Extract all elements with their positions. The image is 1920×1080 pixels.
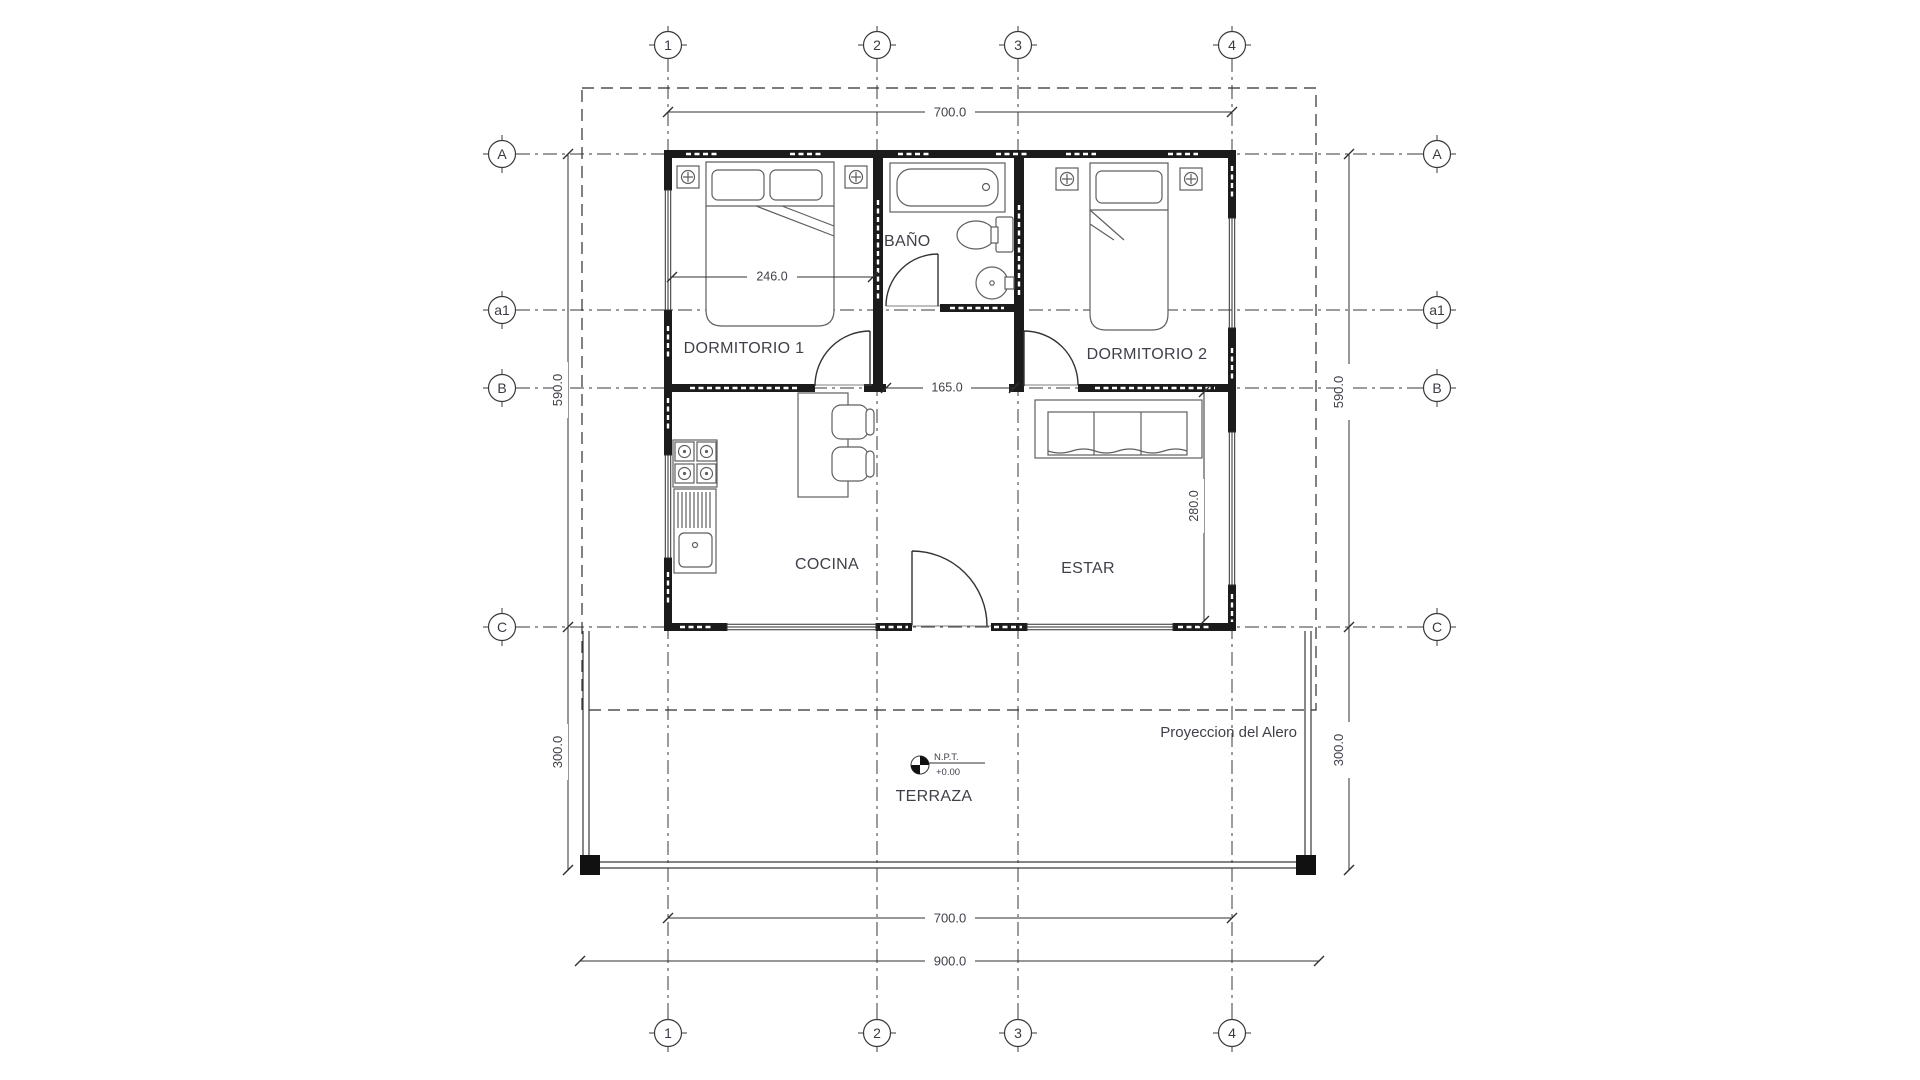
svg-text:C: C	[1432, 619, 1442, 635]
socket-box	[1056, 168, 1078, 190]
svg-text:3: 3	[1014, 37, 1022, 53]
svg-text:2: 2	[873, 1025, 881, 1041]
eave-projection-label: Proyeccion del Alero	[1160, 724, 1297, 741]
sink-basin	[679, 533, 712, 567]
window-cocina-west	[664, 455, 672, 558]
socket-box	[1180, 168, 1202, 190]
floor-plan-sheet: 700.0 700.0 900.0 590.0 300.0	[0, 0, 1920, 1080]
window-dorm1-west	[664, 190, 672, 310]
chair	[832, 405, 874, 439]
wall-left-seg3	[664, 558, 672, 631]
terrace-column-left	[580, 855, 600, 875]
socket-box	[845, 166, 867, 188]
pillow	[712, 170, 764, 200]
socket-box	[677, 166, 699, 188]
terrace-column-right	[1296, 855, 1316, 875]
washbasin-tap	[1005, 277, 1014, 289]
dim-label-280: 280.0	[1187, 490, 1201, 521]
room-label-bano: BAÑO	[884, 230, 931, 250]
room-label-cocina: COCINA	[795, 556, 859, 573]
svg-text:C: C	[497, 619, 507, 635]
svg-text:4: 4	[1228, 1025, 1236, 1041]
window-dorm2-east	[1228, 218, 1236, 328]
toilet-bowl	[957, 221, 995, 249]
dim-label-900: 900.0	[934, 954, 967, 969]
pillow	[770, 170, 822, 200]
dim-label-300-right: 300.0	[1331, 734, 1346, 767]
svg-text:A: A	[497, 146, 507, 162]
dim-label-590-left: 590.0	[550, 374, 565, 407]
double-bed	[706, 162, 834, 326]
svg-text:1: 1	[664, 37, 672, 53]
chair	[832, 447, 874, 481]
room-label-estar: ESTAR	[1061, 560, 1115, 577]
dim-label-590-right: 590.0	[1331, 376, 1346, 409]
bathtub	[890, 163, 1005, 212]
npt-level-value: +0.00	[936, 767, 960, 778]
room-label-dormitorio1: DORMITORIO 1	[684, 340, 805, 357]
room-label-dormitorio2: DORMITORIO 2	[1087, 346, 1208, 363]
dim-label-700-bottom: 700.0	[934, 911, 967, 926]
dim-label-165: 165.0	[931, 381, 962, 395]
dim-label-300-left: 300.0	[550, 736, 565, 769]
svg-text:a1: a1	[494, 302, 510, 318]
svg-text:1: 1	[664, 1025, 672, 1041]
svg-text:A: A	[1432, 146, 1442, 162]
wall-left-seg2	[664, 310, 672, 455]
window-cocina-south	[727, 623, 876, 631]
wall-right-seg3	[1228, 585, 1236, 631]
sofa	[1035, 400, 1202, 458]
svg-text:3: 3	[1014, 1025, 1022, 1041]
wall-top	[664, 150, 1236, 158]
room-label-terraza: TERRAZA	[896, 788, 973, 805]
wall-left-seg1	[664, 150, 672, 190]
floor-plan-drawing: 700.0 700.0 900.0 590.0 300.0	[0, 0, 1920, 1080]
pillow	[1096, 171, 1162, 203]
wall-right-seg2	[1228, 328, 1236, 432]
window-estar-south	[1027, 623, 1173, 631]
wall-bottom-seg1	[664, 623, 727, 631]
dim-label-700-top: 700.0	[934, 105, 967, 120]
svg-text:a1: a1	[1429, 302, 1445, 318]
window-estar-east	[1228, 432, 1236, 585]
svg-text:B: B	[497, 380, 506, 396]
stove	[673, 440, 717, 487]
svg-text:B: B	[1432, 380, 1441, 396]
svg-text:4: 4	[1228, 37, 1236, 53]
npt-label: N.P.T.	[934, 752, 959, 763]
kitchen-sink	[674, 489, 716, 573]
svg-text:2: 2	[873, 37, 881, 53]
dim-label-246: 246.0	[756, 270, 787, 284]
single-bed	[1090, 163, 1168, 330]
